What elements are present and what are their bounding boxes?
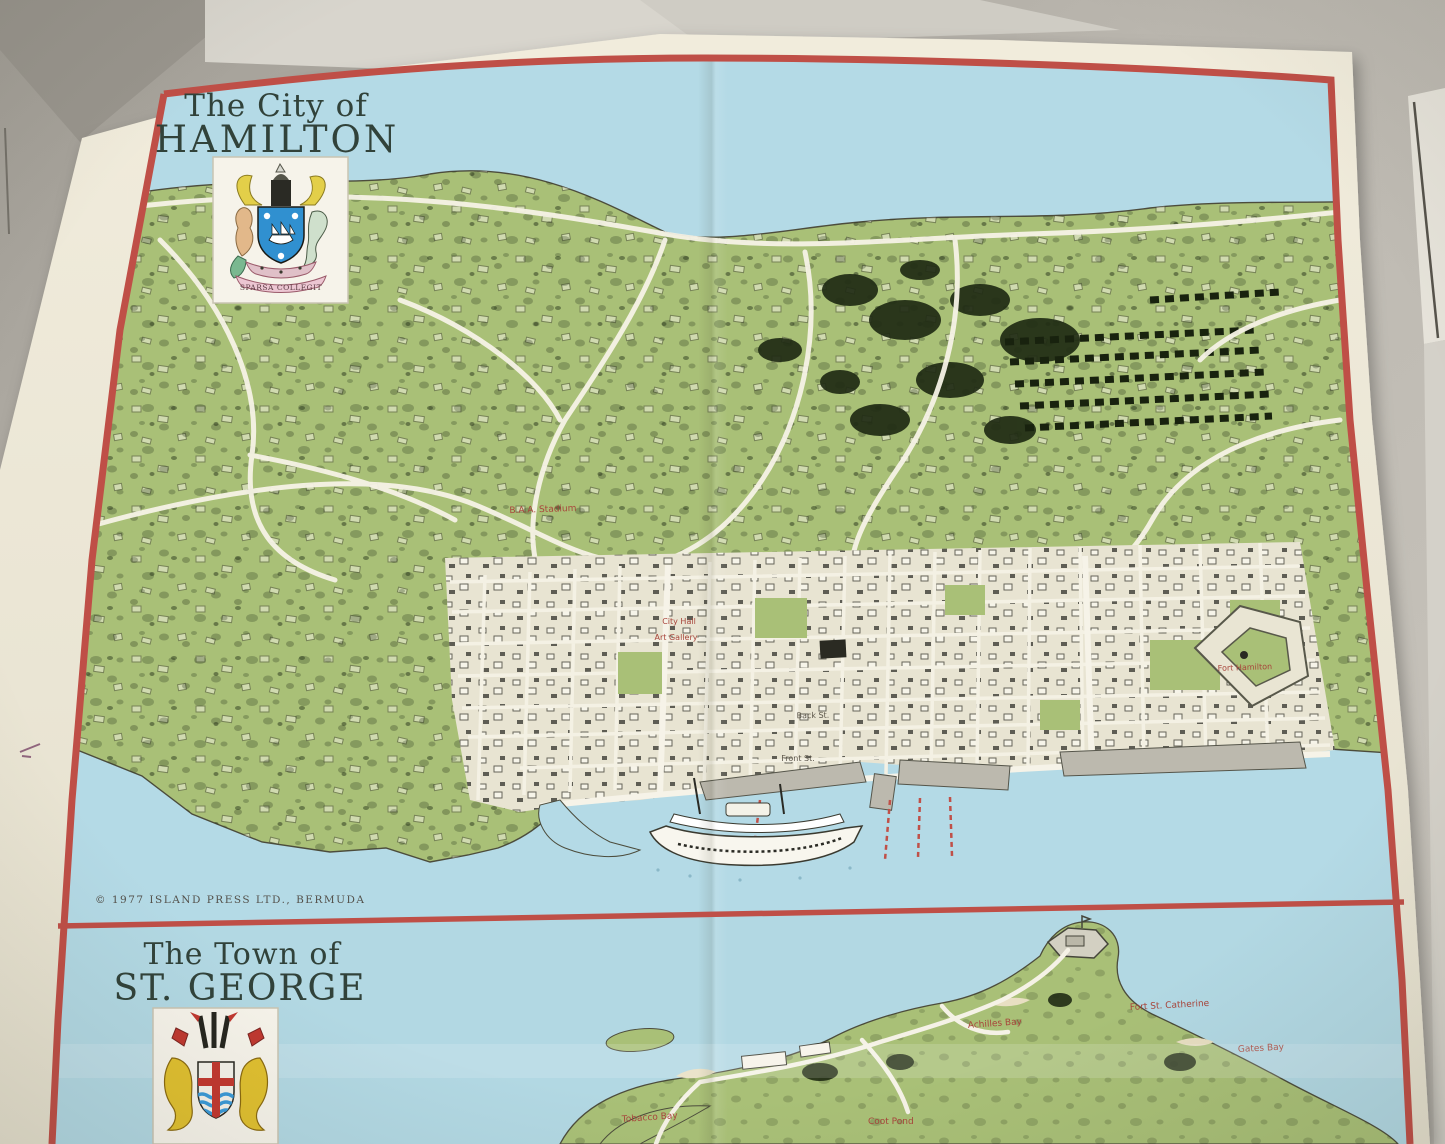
map-photo-svg: B.A.A. Stadium City Hall Art Gallery Bac… bbox=[0, 0, 1445, 1144]
photo-vignette bbox=[0, 0, 1445, 1144]
photo-of-folded-map: B.A.A. Stadium City Hall Art Gallery Bac… bbox=[0, 0, 1445, 1144]
